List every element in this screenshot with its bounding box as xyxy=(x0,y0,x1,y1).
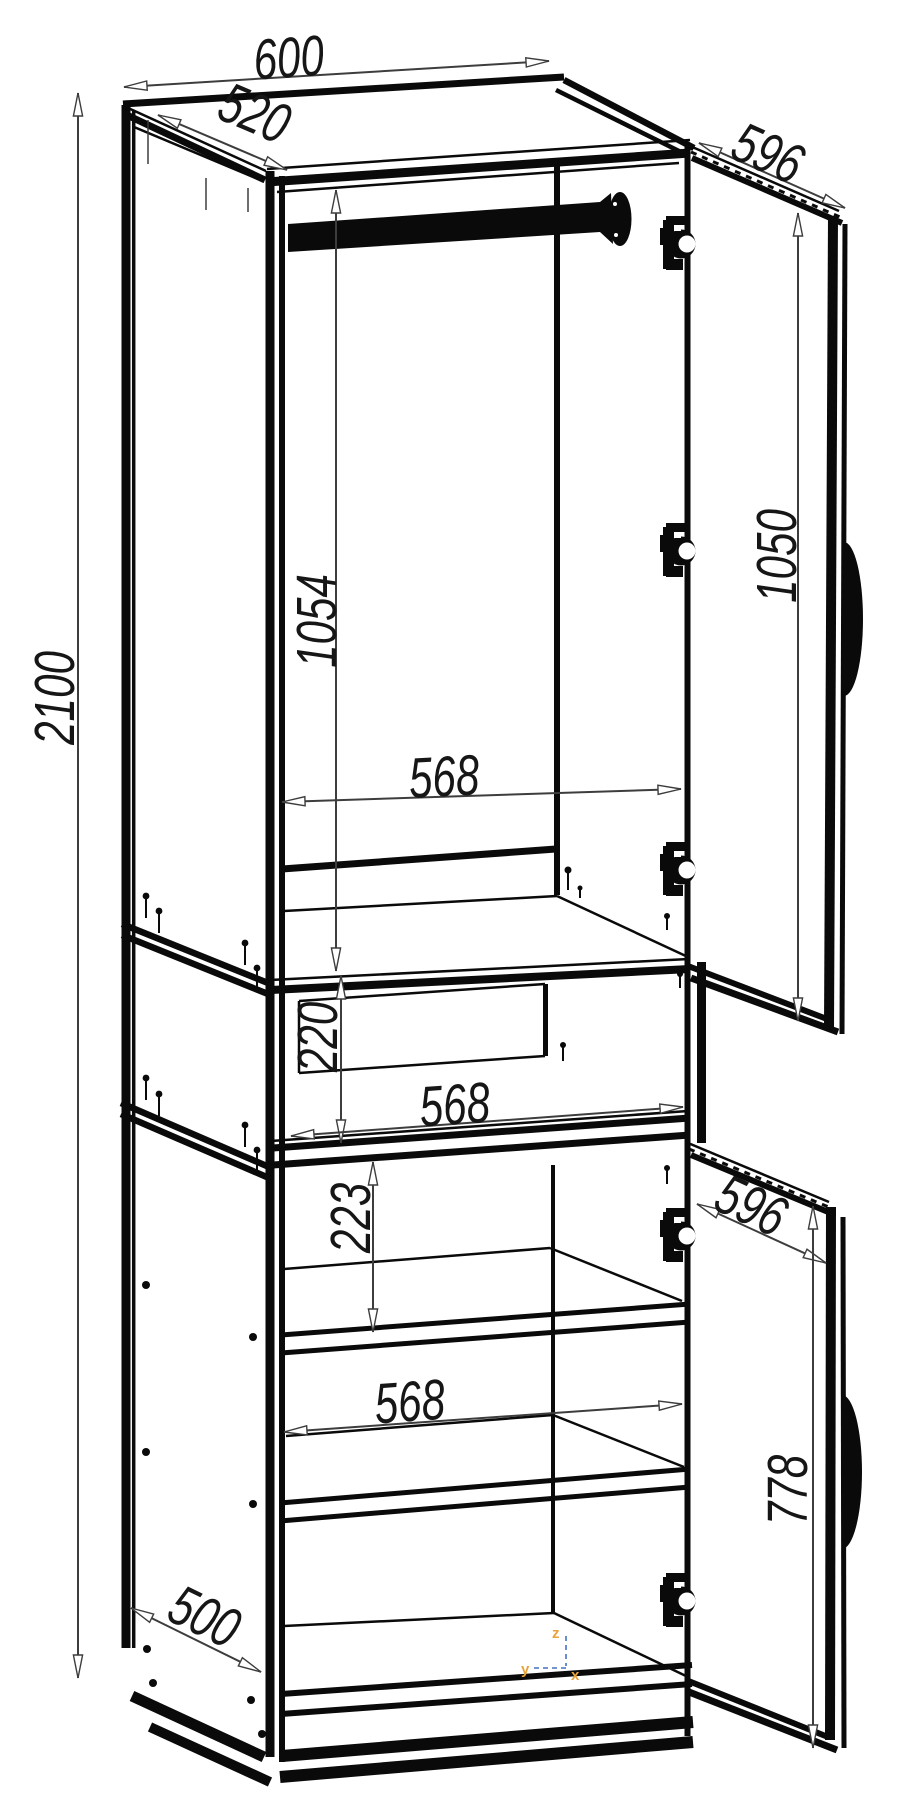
svg-text:1050: 1050 xyxy=(745,509,809,603)
svg-text:568: 568 xyxy=(372,1368,447,1436)
svg-text:x: x xyxy=(571,1667,580,1684)
svg-text:568: 568 xyxy=(417,1071,492,1139)
svg-text:223: 223 xyxy=(319,1183,383,1254)
svg-text:z: z xyxy=(552,1625,560,1642)
svg-text:220: 220 xyxy=(286,1002,350,1073)
svg-text:2100: 2100 xyxy=(23,651,87,746)
svg-text:y: y xyxy=(521,1661,530,1678)
svg-text:1054: 1054 xyxy=(285,574,349,668)
svg-text:778: 778 xyxy=(756,1455,820,1525)
svg-text:568: 568 xyxy=(407,743,481,810)
